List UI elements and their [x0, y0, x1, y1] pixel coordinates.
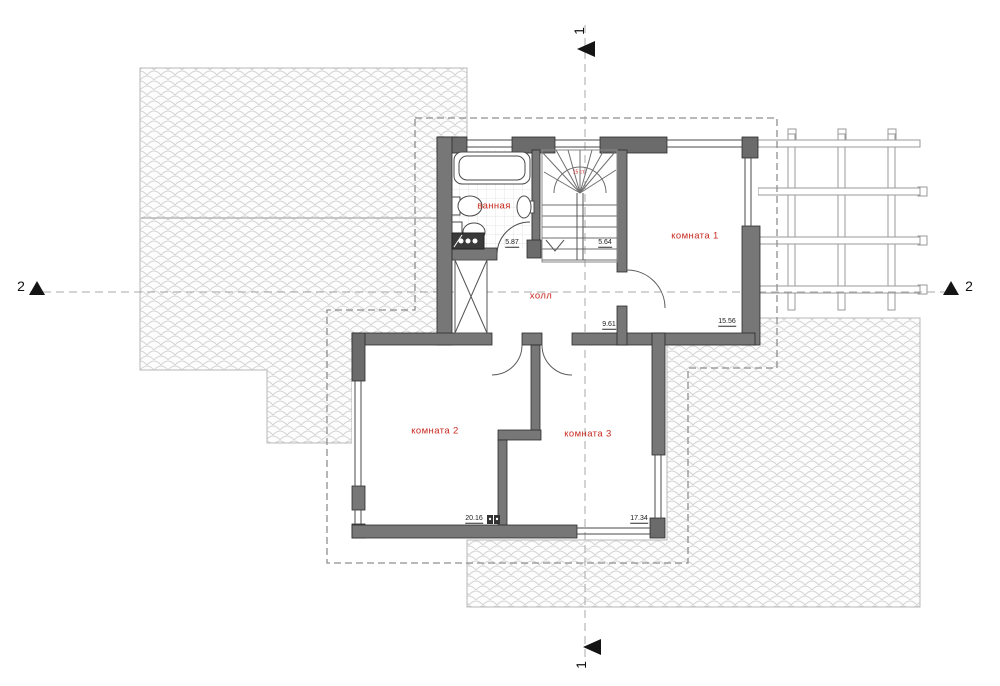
section-1-top-number: 1 [572, 27, 586, 35]
bathroom-area-dim: 5.87 [505, 239, 519, 248]
section-arrow-right-icon [943, 281, 959, 295]
washing-machine [452, 233, 484, 249]
room2-area-dim: 20.16 [465, 515, 483, 524]
section-2-right-number: 2 [965, 279, 973, 293]
floor-plan-drawing [0, 0, 1000, 686]
room1-area-dim: 15.56 [718, 318, 736, 327]
room3-label: комната 3 [564, 429, 611, 439]
section-2-left-number: 2 [17, 279, 25, 293]
hall-label: холл [530, 291, 552, 301]
hall-area-dim: 9.61 [602, 321, 616, 330]
pergola-grid [758, 129, 927, 310]
room3-area-dim: 17.34 [630, 515, 648, 524]
bathroom-label: ванная [477, 201, 511, 211]
room1-label: комната 1 [671, 231, 718, 241]
section-arrow-bottom-icon [583, 639, 601, 655]
section-arrow-top-icon [577, 41, 595, 57]
section-arrow-left-icon [29, 281, 45, 295]
floor-plan-canvas: ванная холл комната 1 комната 2 комната … [0, 0, 1000, 686]
room2-label: комната 2 [411, 426, 458, 436]
stairs-area-dim: 5.64 [598, 239, 612, 248]
wardrobe [455, 260, 487, 333]
section-1-bottom-number: 1 [574, 661, 588, 669]
stairs-note-label: 15 ст. [573, 171, 586, 176]
